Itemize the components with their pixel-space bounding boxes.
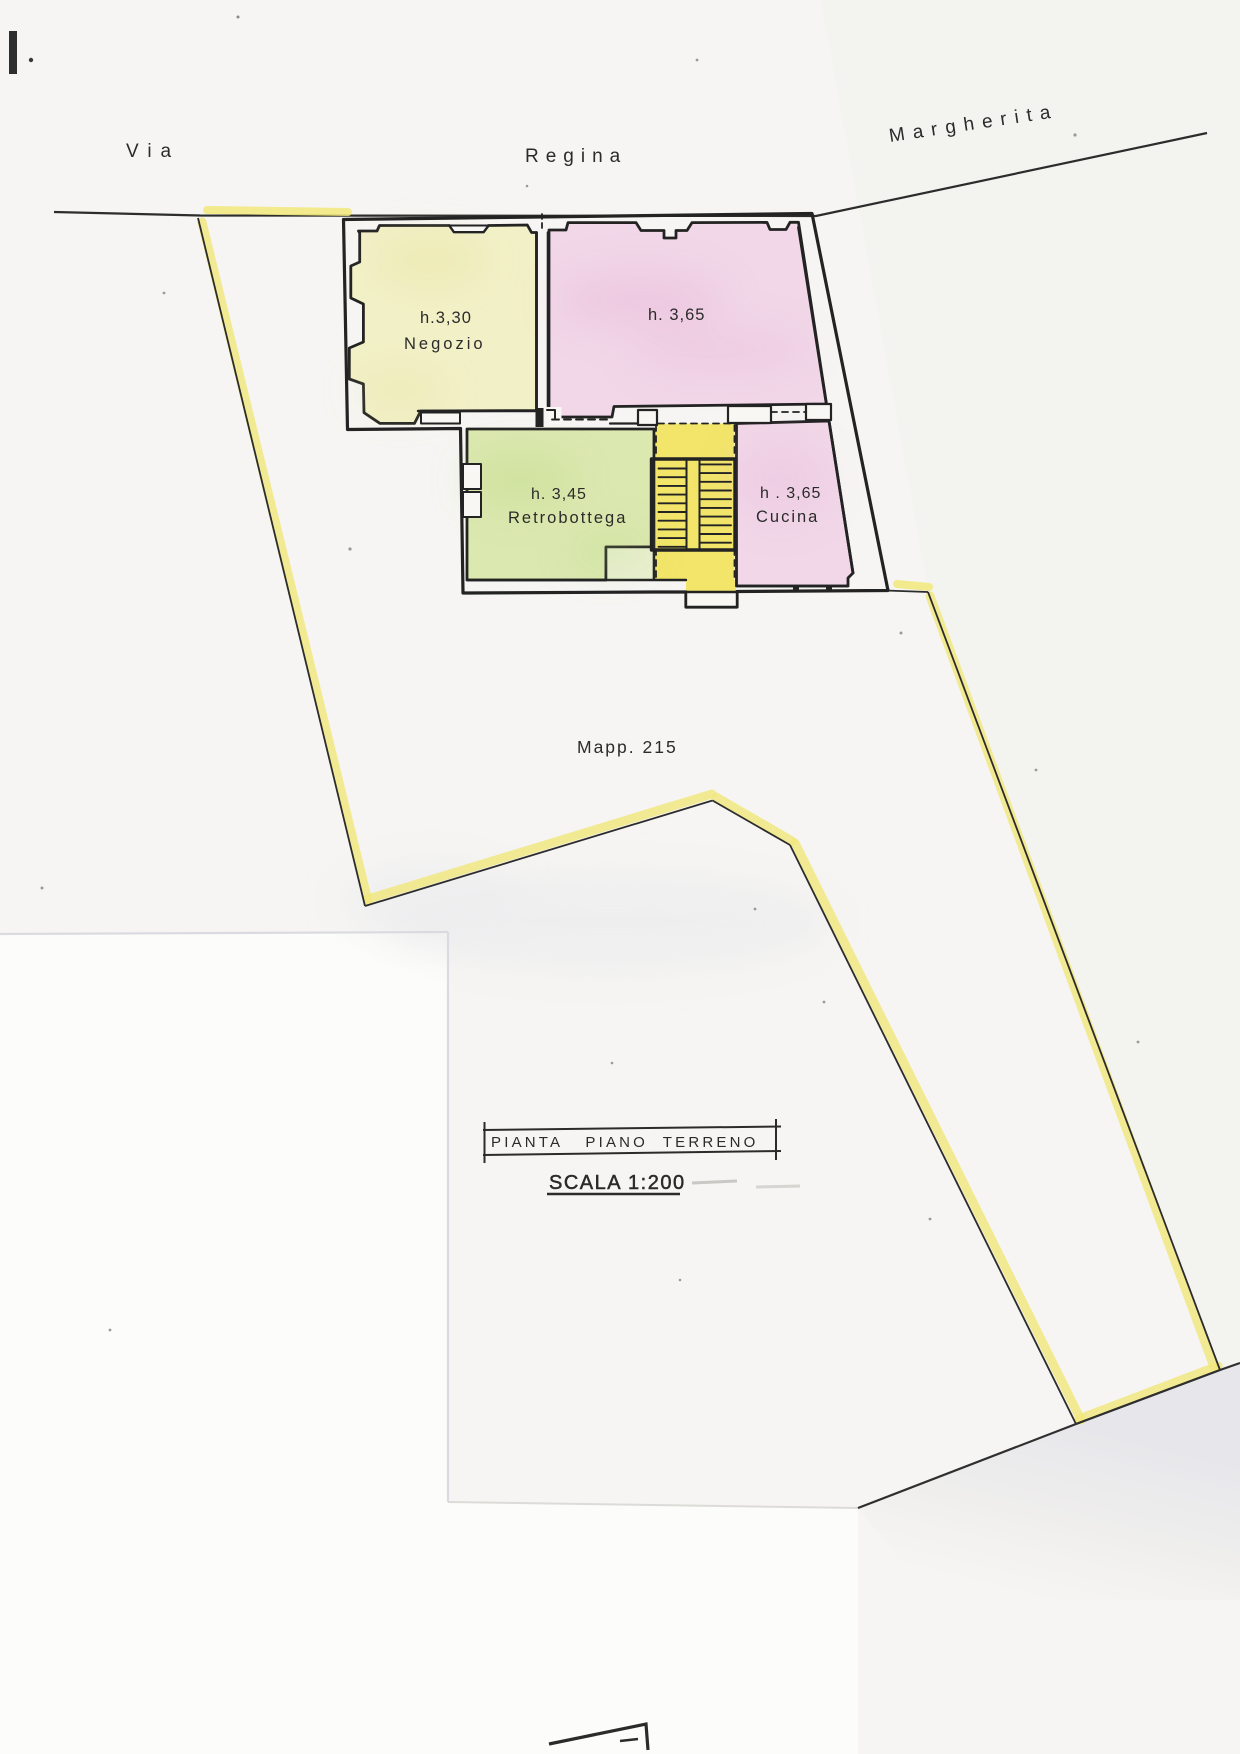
svg-text:h.3,30: h.3,30 [420, 309, 472, 327]
svg-text:Retrobottega: Retrobottega [508, 509, 627, 527]
svg-text:Mapp. 215: Mapp. 215 [577, 737, 678, 757]
svg-text:h. 3,65: h. 3,65 [648, 306, 705, 324]
svg-text:Regina: Regina [525, 146, 627, 167]
svg-text:PIANTA PIANO TERRENO: PIANTA PIANO TERRENO [491, 1134, 759, 1151]
svg-text:SCALA 1:200: SCALA 1:200 [549, 1172, 686, 1194]
svg-text:Cucina: Cucina [756, 508, 819, 526]
svg-text:Negozio: Negozio [404, 335, 486, 353]
svg-text:h. 3,45: h. 3,45 [531, 486, 587, 503]
svg-text:Via: Via [126, 141, 180, 162]
svg-text:h . 3,65: h . 3,65 [760, 485, 821, 502]
